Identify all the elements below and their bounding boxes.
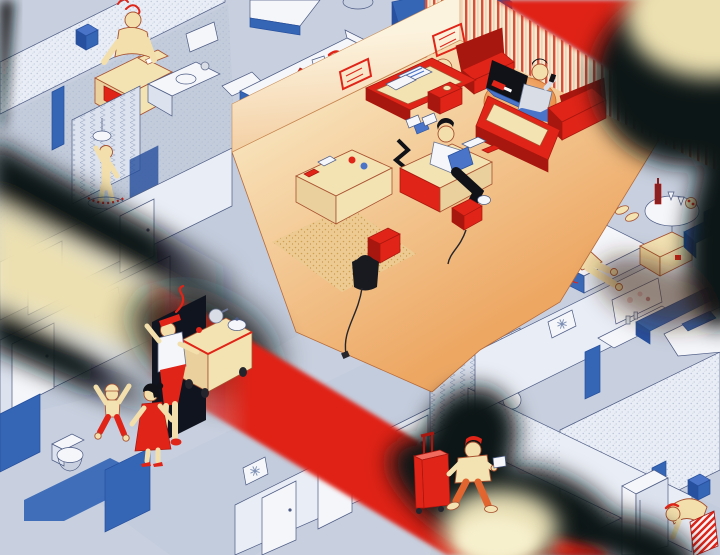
key-card bbox=[493, 456, 506, 468]
shower-head-icon bbox=[93, 131, 111, 141]
blue-pillar bbox=[52, 86, 64, 150]
illustration-canvas bbox=[0, 0, 720, 555]
kettle bbox=[201, 62, 209, 70]
gamer-head bbox=[532, 64, 548, 80]
sink bbox=[176, 74, 196, 84]
attendant-head bbox=[125, 12, 141, 28]
kettle bbox=[209, 309, 223, 323]
cream-jacket bbox=[455, 455, 491, 483]
black-bag bbox=[352, 257, 379, 291]
wine-bottle bbox=[655, 184, 661, 204]
phone-cream bbox=[443, 86, 451, 91]
blue-cabinet bbox=[585, 345, 600, 399]
latch bbox=[675, 255, 681, 260]
cloche bbox=[228, 320, 246, 331]
illustration bbox=[0, 0, 720, 555]
worker-head bbox=[438, 126, 454, 142]
